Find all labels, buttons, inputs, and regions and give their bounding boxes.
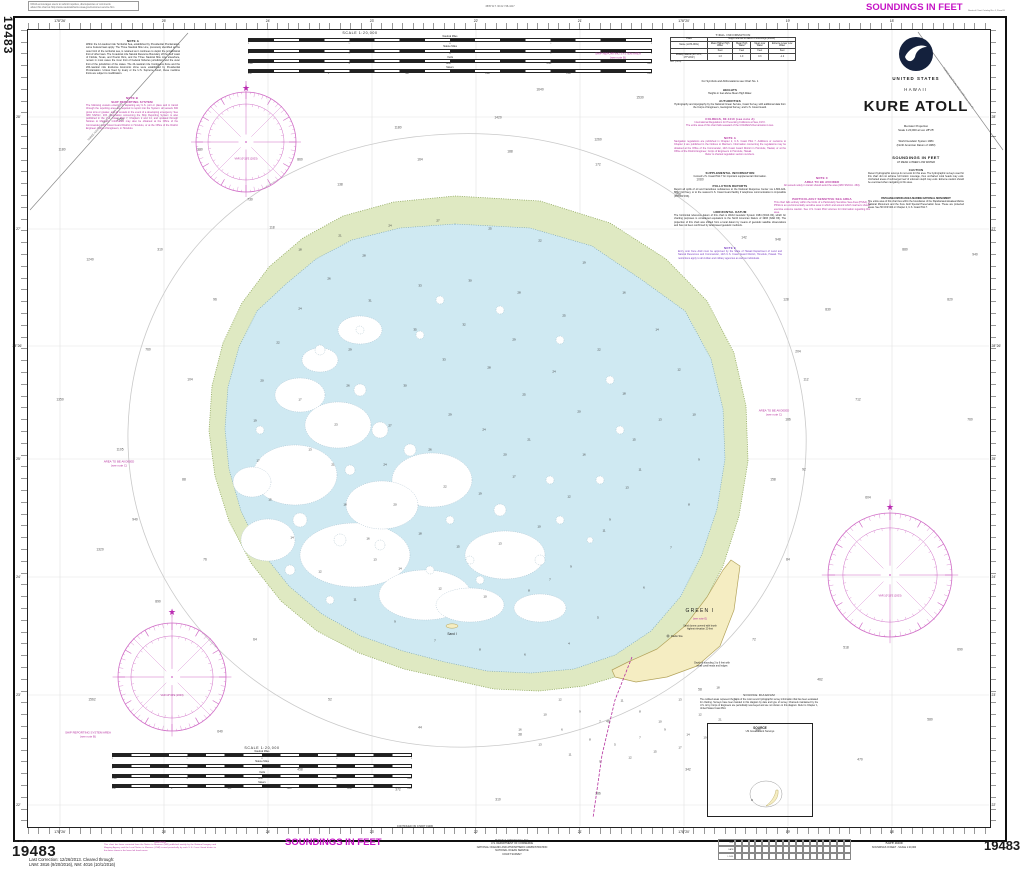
sounding-value: 44 <box>418 726 422 729</box>
sounding-value: 13 <box>373 559 376 562</box>
sounding-value: 22 <box>276 342 279 345</box>
sounding-value: 186 <box>785 418 791 421</box>
sounding-value: 11 <box>353 599 356 602</box>
sounding-value: 16 <box>582 454 585 457</box>
sounding-value: 204 <box>795 350 801 353</box>
sounding-value: 31 <box>368 300 371 303</box>
sounding-value: 14 <box>686 734 689 737</box>
sounding-value: 712 <box>855 398 861 401</box>
sounding-value: 96 <box>213 298 217 301</box>
sounding-value: 22 <box>597 349 600 352</box>
sounding-value: 26 <box>346 385 349 388</box>
sounding-value: 18 <box>716 687 719 690</box>
sounding-value: 172 <box>595 163 601 166</box>
sounding-value: 112 <box>803 378 808 381</box>
sounding-value: 7 <box>670 547 672 550</box>
sounding-value: 12 <box>438 588 441 591</box>
sounding-value: 5 <box>597 617 599 620</box>
sounding-value: 16 <box>622 292 625 295</box>
sounding-value: 1530 <box>636 96 643 99</box>
sounding-value: 16 <box>366 538 369 541</box>
sounding-value: 16 <box>518 729 521 732</box>
sounding-value: 15 <box>632 439 635 442</box>
sounding-value: 390 <box>755 729 761 732</box>
sounding-value: 24 <box>388 225 391 228</box>
sounding-value: 8 <box>589 739 591 742</box>
sounding-value: 462 <box>817 678 823 681</box>
sounding-value: 470 <box>857 758 863 761</box>
sounding-value: 9 <box>394 621 396 624</box>
sounding-value: 30 <box>403 385 406 388</box>
sounding-value: 25 <box>488 228 491 231</box>
sounding-value: 860 <box>297 158 303 161</box>
sounding-value: 13 <box>498 543 501 546</box>
depth-soundings-layer: 1821242725221916141210987654687911121415… <box>0 0 1024 869</box>
sounding-value: 142 <box>741 236 747 239</box>
sounding-value: 11 <box>638 469 641 472</box>
sounding-value: 118 <box>269 226 274 229</box>
sounding-value: 29 <box>348 349 351 352</box>
sounding-value: 310 <box>157 248 163 251</box>
sounding-value: 21 <box>338 235 341 238</box>
sounding-value: 1562 <box>88 698 95 701</box>
sounding-value: 32 <box>462 324 465 327</box>
sounding-value: 880 <box>902 248 908 251</box>
sounding-value: 20 <box>577 411 580 414</box>
sounding-value: 76 <box>203 558 207 561</box>
sounding-value: 26 <box>327 278 330 281</box>
sounding-value: 13 <box>308 449 311 452</box>
sounding-value: 372 <box>395 788 401 791</box>
sounding-value: 21 <box>331 464 334 467</box>
sounding-value: 690 <box>957 648 963 651</box>
sounding-value: 104 <box>187 378 193 381</box>
sounding-value: 28 <box>487 367 490 370</box>
sounding-value: 1420 <box>494 116 501 119</box>
sounding-value: 20 <box>503 454 506 457</box>
sounding-value: 24 <box>552 371 555 374</box>
sounding-value: 890 <box>155 600 161 603</box>
sounding-value: 1350 <box>56 398 63 401</box>
sounding-value: 30 <box>468 280 471 283</box>
sounding-value: 21 <box>527 439 530 442</box>
sounding-value: 24 <box>383 464 386 467</box>
sounding-value: 12 <box>698 714 701 717</box>
sounding-value: 12 <box>558 699 561 702</box>
sounding-value: 604 <box>865 496 871 499</box>
sounding-value: 46 <box>606 720 610 723</box>
sounding-value: 9 <box>664 729 666 732</box>
sounding-value: 458 <box>297 768 303 771</box>
sounding-value: 28 <box>362 255 365 258</box>
sounding-value: 518 <box>843 646 849 649</box>
sounding-value: 21 <box>718 719 721 722</box>
sounding-value: 17 <box>512 476 515 479</box>
sounding-value: 5 <box>614 744 616 747</box>
sounding-value: 24 <box>298 308 301 311</box>
sounding-value: 20 <box>260 380 263 383</box>
sounding-value: 948 <box>775 238 781 241</box>
sounding-value: 342 <box>685 768 691 771</box>
sounding-value: 14 <box>290 537 293 540</box>
sounding-value: 64 <box>253 638 257 641</box>
sounding-value: 1180 <box>58 148 65 151</box>
sounding-value: 1105 <box>116 448 123 451</box>
sounding-value: 38 <box>518 733 522 736</box>
sounding-value: 8 <box>528 590 530 593</box>
sounding-value: 9 <box>570 566 572 569</box>
sounding-value: 6 <box>643 587 645 590</box>
sounding-value: 6 <box>524 654 526 657</box>
sounding-value: 286 <box>595 792 601 795</box>
sounding-value: 730 <box>247 198 253 201</box>
sounding-value: 7 <box>639 737 641 740</box>
sounding-value: 35 <box>413 329 416 332</box>
sounding-value: 13 <box>625 487 628 490</box>
sounding-value: 17 <box>256 460 259 463</box>
sounding-value: 8 <box>479 649 481 652</box>
sounding-value: 9 <box>579 711 581 714</box>
sounding-value: 820 <box>947 298 953 301</box>
sounding-value: 7 <box>434 640 436 643</box>
sounding-value: 58 <box>698 688 702 691</box>
sounding-value: 14 <box>655 329 658 332</box>
sounding-value: 1320 <box>96 548 103 551</box>
sounding-value: 29 <box>512 339 515 342</box>
sounding-value: 28 <box>517 292 520 295</box>
sounding-value: 27 <box>436 220 439 223</box>
sounding-value: 640 <box>217 730 223 733</box>
sounding-value: 18 <box>298 249 301 252</box>
sounding-value: 1240 <box>86 258 93 261</box>
sounding-value: 10 <box>658 721 661 724</box>
sounding-value: 10 <box>483 596 486 599</box>
sounding-value: 15 <box>268 499 271 502</box>
sounding-value: 24 <box>733 699 736 702</box>
sounding-value: 11 <box>620 700 623 703</box>
sounding-value: 18 <box>418 533 421 536</box>
sounding-value: 138 <box>337 183 343 186</box>
sounding-value: 1180 <box>394 126 401 129</box>
sounding-value: 13 <box>538 744 541 747</box>
sounding-value: 22 <box>443 486 446 489</box>
sounding-value: 18 <box>622 393 625 396</box>
sounding-value: 72 <box>752 638 756 641</box>
sounding-value: 164 <box>417 158 423 161</box>
sounding-value: 10 <box>692 414 695 417</box>
sounding-value: 760 <box>145 348 151 351</box>
sounding-value: 940 <box>972 253 978 256</box>
sounding-value: 11 <box>568 754 571 757</box>
sounding-value: 1260 <box>594 138 601 141</box>
sounding-value: 18 <box>343 504 346 507</box>
sounding-value: 33 <box>442 359 445 362</box>
sounding-value: 23 <box>334 424 337 427</box>
sounding-value: 24 <box>482 429 485 432</box>
sounding-value: 1080 <box>696 178 703 181</box>
sounding-value: 17 <box>678 747 681 750</box>
sounding-value: 14 <box>398 568 401 571</box>
sounding-value: 6 <box>561 729 563 732</box>
sounding-value: 12 <box>567 496 570 499</box>
sounding-value: 12 <box>318 571 321 574</box>
sounding-value: 22 <box>538 240 541 243</box>
sounding-value: 10 <box>543 714 546 717</box>
sounding-value: 33 <box>418 285 421 288</box>
nautical-chart-sheet: VAR 10°15'E (2003)VAR 10°15'E (2003)VAR … <box>0 0 1024 869</box>
sounding-value: 9 <box>698 459 700 462</box>
sounding-value: 13 <box>678 699 681 702</box>
sounding-value: 25 <box>562 315 565 318</box>
sounding-value: 8 <box>639 711 641 714</box>
sounding-value: 158 <box>770 478 776 481</box>
sounding-value: 92 <box>802 468 806 471</box>
sounding-value: 15 <box>456 546 459 549</box>
sounding-value: 27 <box>388 425 391 428</box>
sounding-value: 8 <box>688 504 690 507</box>
sounding-value: 84 <box>786 558 790 561</box>
sounding-value: 15 <box>653 751 656 754</box>
sounding-value: 25 <box>522 394 525 397</box>
sounding-value: 940 <box>132 518 138 521</box>
sounding-value: 9 <box>599 761 601 764</box>
sounding-value: 980 <box>197 148 203 151</box>
sounding-value: 52 <box>328 698 332 701</box>
sounding-value: 19 <box>478 493 481 496</box>
sounding-value: 188 <box>507 150 513 153</box>
sounding-value: 9 <box>609 519 611 522</box>
sounding-value: 17 <box>298 399 301 402</box>
sounding-value: 1640 <box>536 88 543 91</box>
sounding-value: 310 <box>495 798 501 801</box>
sounding-value: 760 <box>967 418 973 421</box>
sounding-value: 26 <box>428 449 431 452</box>
sounding-value: 7 <box>599 721 601 724</box>
sounding-value: 19 <box>253 420 256 423</box>
sounding-value: 29 <box>448 414 451 417</box>
sounding-value: 158 <box>675 193 681 196</box>
sounding-value: 19 <box>703 737 706 740</box>
sounding-value: 11 <box>602 530 605 533</box>
sounding-value: 830 <box>825 308 831 311</box>
sounding-value: 10 <box>537 526 540 529</box>
sounding-value: 13 <box>658 419 661 422</box>
sounding-value: 88 <box>182 478 186 481</box>
sounding-value: 12 <box>628 757 631 760</box>
sounding-value: 12 <box>677 369 680 372</box>
sounding-value: 580 <box>927 718 933 721</box>
sounding-value: 128 <box>783 298 789 301</box>
sounding-value: 1450 <box>116 118 123 121</box>
sounding-value: 4 <box>568 643 570 646</box>
sounding-value: 19 <box>582 262 585 265</box>
sounding-value: 7 <box>549 579 551 582</box>
sounding-value: 20 <box>393 504 396 507</box>
